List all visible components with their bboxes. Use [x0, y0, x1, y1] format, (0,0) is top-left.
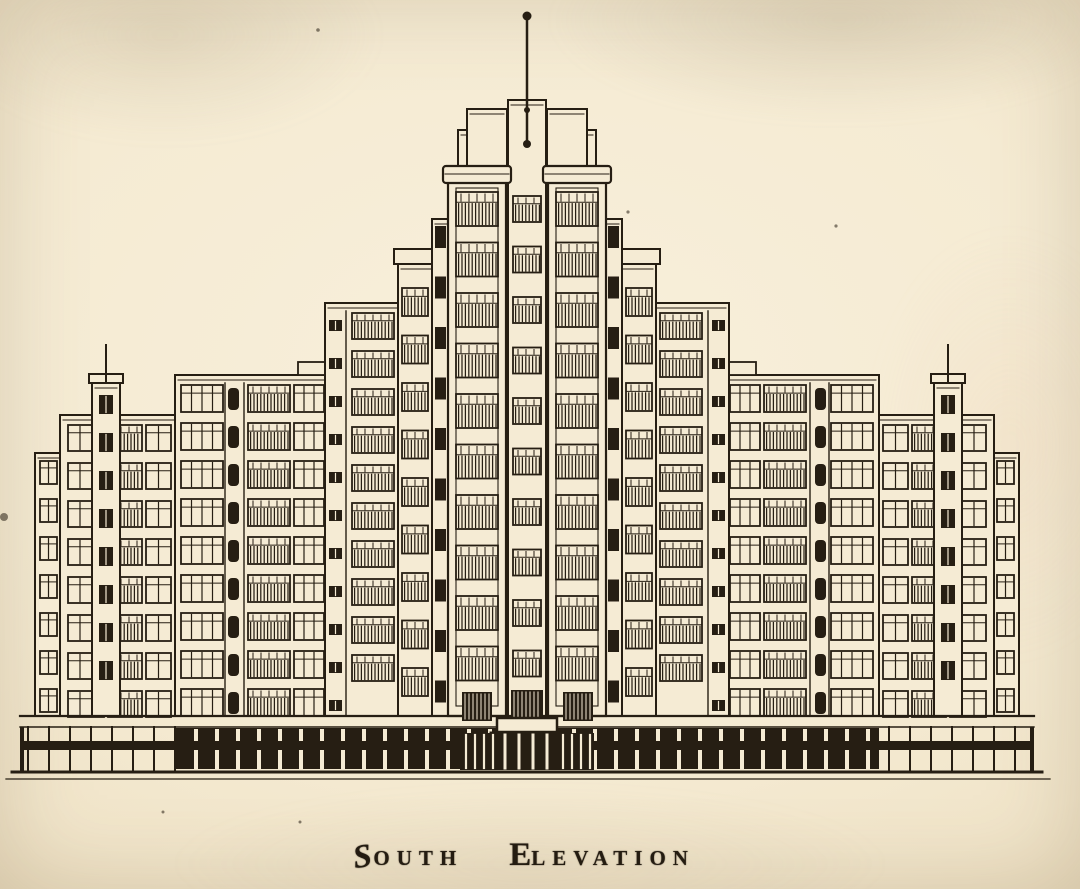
caption-word-elevation: ELEVATION — [509, 839, 695, 872]
building-stepped-masses — [35, 100, 1019, 717]
caption-word-south: SOUTH — [353, 839, 463, 872]
caption-word1-rest: OUTH — [373, 848, 463, 869]
caption-word2-rest: LEVATION — [531, 848, 695, 869]
caption-initial-e: E — [509, 839, 531, 872]
scanned-drawing-page: SOUTH ELEVATION — [0, 0, 1080, 889]
ground-lines — [6, 772, 1050, 779]
south-elevation-drawing — [0, 0, 1080, 889]
caption-initial-s: S — [351, 840, 374, 875]
drawing-caption: SOUTH ELEVATION — [0, 839, 1064, 872]
